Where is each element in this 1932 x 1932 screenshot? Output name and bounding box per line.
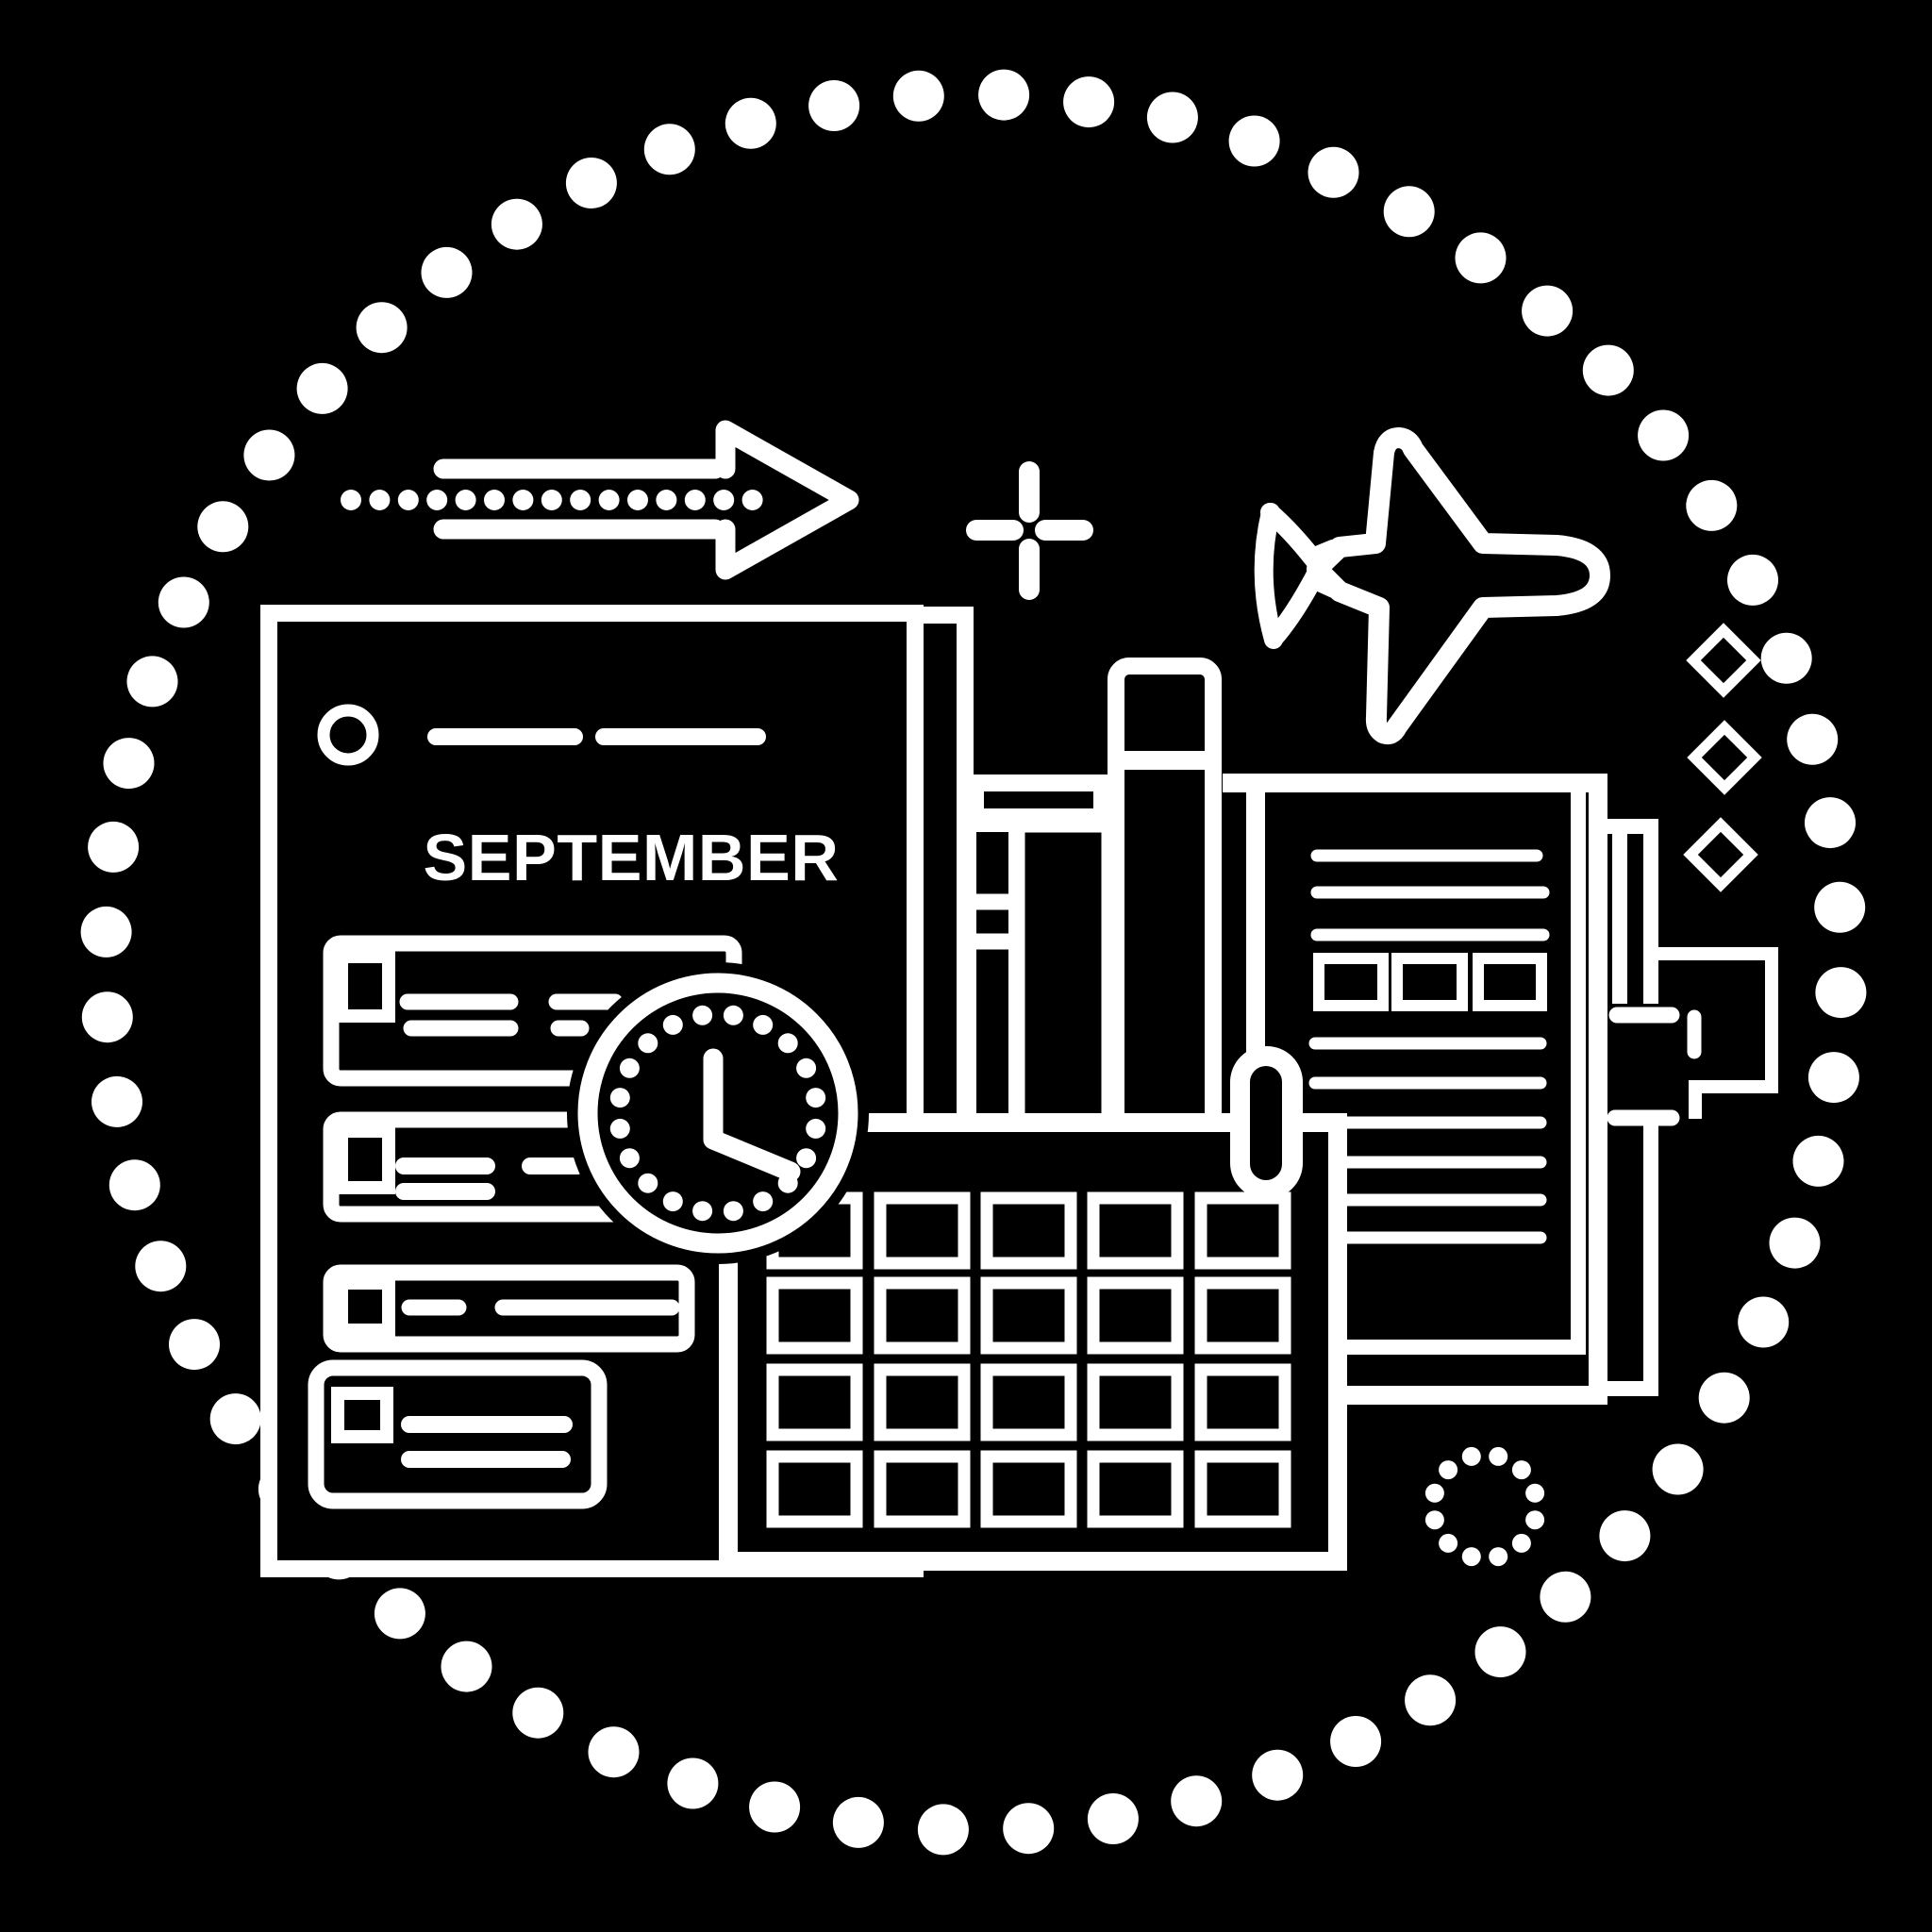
svg-text:SEPTEMBER: SEPTEMBER (423, 821, 839, 894)
